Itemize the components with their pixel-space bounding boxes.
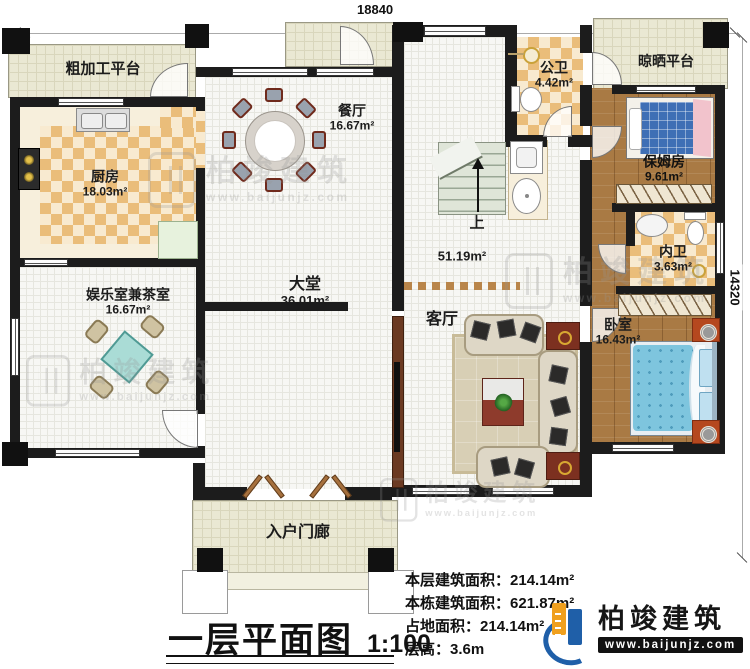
kitchen-tiles-doorway <box>196 110 205 168</box>
window <box>24 259 68 266</box>
nightstand <box>692 318 720 342</box>
floor-drain <box>692 264 706 278</box>
room-label-drying-platform: 晾晒平台 <box>638 54 694 70</box>
duvet <box>633 345 693 431</box>
toilet-tank <box>684 212 706 220</box>
sofa-bottom <box>476 446 550 488</box>
dining-chair <box>222 131 236 149</box>
toilet-bowl <box>520 87 542 112</box>
window <box>412 487 470 495</box>
room-label-rough-platform: 粗加工平台 <box>65 62 140 79</box>
room-label-nanny: 保姆房 9.61m² <box>643 154 685 183</box>
burner <box>24 155 34 165</box>
stair-arrow-head <box>472 158 484 169</box>
nightstand <box>692 420 720 444</box>
kitchen-tiles-pass <box>160 106 196 128</box>
washer-drum <box>516 147 537 168</box>
sofa-cushion <box>548 364 568 384</box>
laundry-basin <box>512 178 541 214</box>
bathroom-sink <box>636 214 668 237</box>
wall <box>392 25 404 311</box>
column <box>197 548 223 572</box>
window <box>424 26 486 36</box>
side-table <box>546 322 580 350</box>
porch-step-band <box>202 572 380 590</box>
label-stairs-up: 上 <box>469 216 484 233</box>
window <box>55 449 140 457</box>
wall <box>580 85 592 126</box>
room-label-living: 客厅 <box>426 311 458 329</box>
top-dimension-label: 18840 <box>352 2 398 17</box>
toilet-bowl <box>687 221 704 245</box>
dining-chair <box>312 131 326 149</box>
dining-chair <box>265 88 283 102</box>
ceiling-boundary-dashed-line <box>404 282 520 290</box>
column <box>393 22 423 42</box>
brand-logo-icon <box>543 601 589 657</box>
column <box>368 548 394 572</box>
column <box>2 442 28 466</box>
room-label-tea-room: 娱乐室兼茶室 16.67m² <box>86 287 170 316</box>
window <box>636 86 696 93</box>
dining-table-top <box>254 120 296 162</box>
stove <box>18 148 40 190</box>
nanny-bed-plaid-duvet <box>640 102 694 154</box>
wall <box>345 487 392 500</box>
wall <box>580 25 592 53</box>
room-label-inner-bath: 内卫 3.63m² <box>654 244 692 273</box>
toilet-tank <box>511 86 520 112</box>
porch-step-base-left <box>182 570 228 614</box>
wall <box>612 203 725 212</box>
burner <box>24 172 34 182</box>
title-underline <box>166 655 394 664</box>
wall <box>580 160 592 306</box>
room-label-bedroom: 卧室 16.43m² <box>596 317 641 346</box>
wall <box>626 212 635 246</box>
room-label-dining: 餐厅 16.67m² <box>330 103 375 132</box>
heater-pipe <box>508 53 524 55</box>
dining-chair <box>265 178 283 192</box>
window <box>316 68 374 76</box>
stat-row: 本层建筑面积：214.14m² <box>405 569 574 592</box>
sofa-cushion <box>549 427 568 446</box>
watermark-url: www.baijunjz.com <box>425 507 540 518</box>
basin-drain <box>525 194 529 198</box>
brand-url: www.baijunjz.com <box>598 637 743 653</box>
sink-basin <box>81 113 103 129</box>
wall <box>616 286 725 294</box>
room-label-public-bath: 公卫 4.42m² <box>535 60 573 89</box>
kitchen-sink <box>76 108 130 132</box>
label-hall-open-area: 51.19m² <box>438 250 486 265</box>
window <box>11 318 19 376</box>
wardrobe-bedroom <box>618 294 712 316</box>
brand-name: 柏竣建筑 <box>598 606 743 633</box>
side-table <box>546 452 580 480</box>
column <box>2 28 30 54</box>
wall <box>193 487 247 500</box>
window <box>612 444 674 452</box>
stair-direction-arrow <box>477 168 479 212</box>
nanny-bed <box>626 97 714 159</box>
pillow <box>629 108 642 150</box>
sofa-cushion <box>497 319 517 339</box>
column <box>703 22 729 48</box>
column <box>185 24 209 48</box>
window <box>58 98 124 106</box>
brand-logo: 柏竣建筑 www.baijunjz.com <box>543 601 743 657</box>
wall <box>196 97 205 111</box>
sofa-cushion <box>490 456 510 476</box>
room-label-kitchen: 厨房 18.03m² <box>83 169 128 198</box>
tv <box>394 362 400 452</box>
room-label-hall: 大堂 36.01m² <box>281 276 329 308</box>
wall <box>580 342 592 497</box>
window <box>492 487 554 495</box>
washer <box>510 141 543 174</box>
fridge <box>158 221 198 259</box>
right-dimension-label: 14320 <box>728 264 743 310</box>
window <box>716 222 724 274</box>
window <box>232 68 308 76</box>
wall <box>196 258 205 414</box>
wardrobe-nanny <box>616 184 712 204</box>
sink-basin <box>105 113 127 129</box>
blanket <box>693 99 711 157</box>
floor-plan-canvas: 18840 14320 <box>0 0 750 669</box>
room-label-porch: 入户门廊 <box>266 524 330 542</box>
